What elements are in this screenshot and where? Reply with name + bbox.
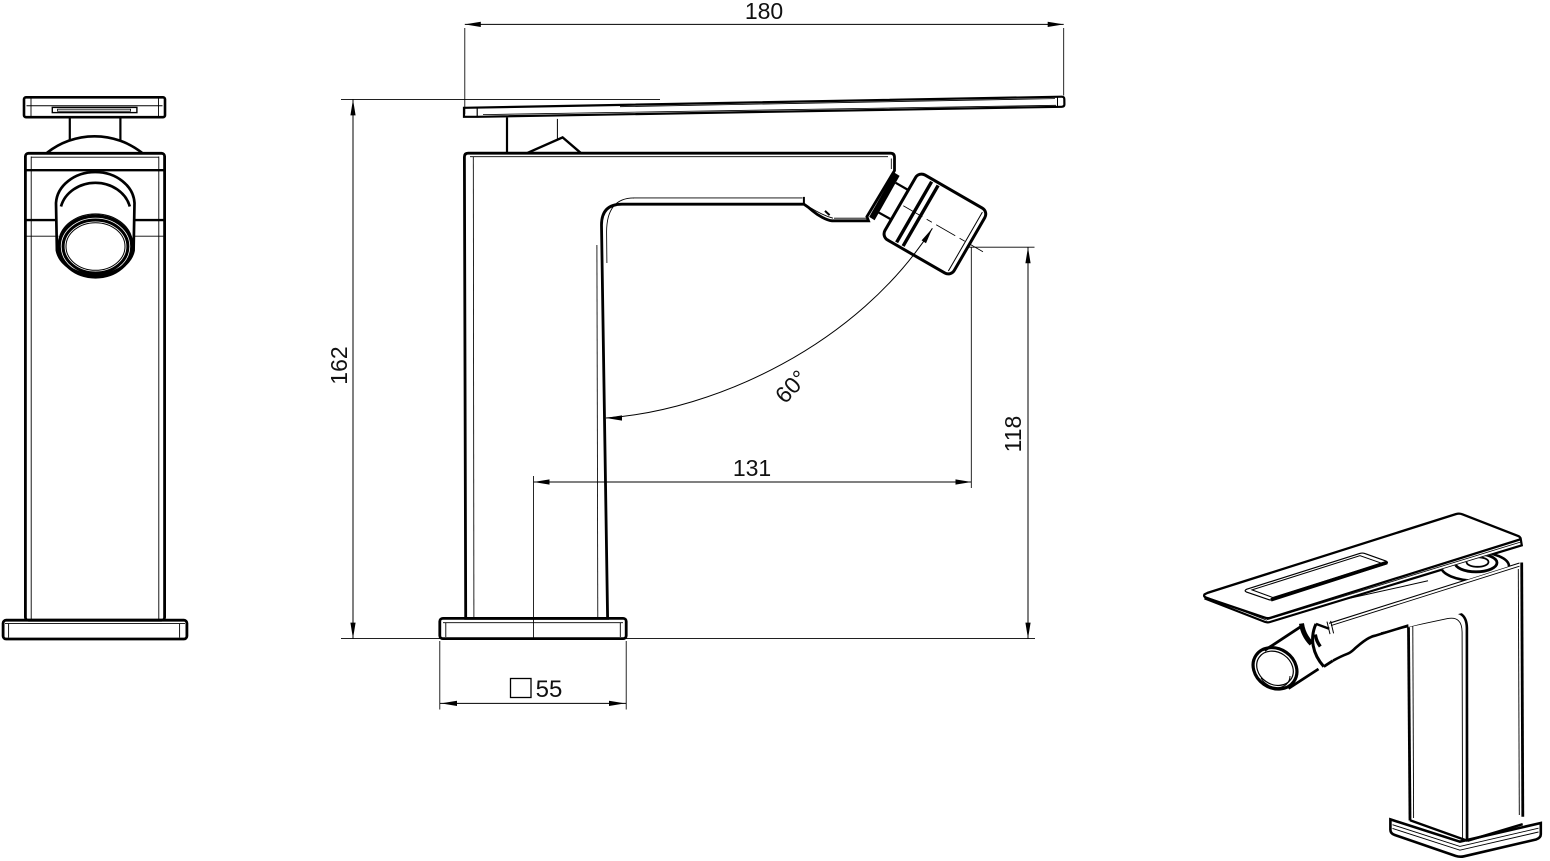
svg-text:55: 55 xyxy=(536,676,563,703)
svg-text:118: 118 xyxy=(1000,416,1026,453)
svg-text:162: 162 xyxy=(326,346,352,384)
svg-text:131: 131 xyxy=(733,455,771,481)
svg-text:180: 180 xyxy=(745,0,783,24)
